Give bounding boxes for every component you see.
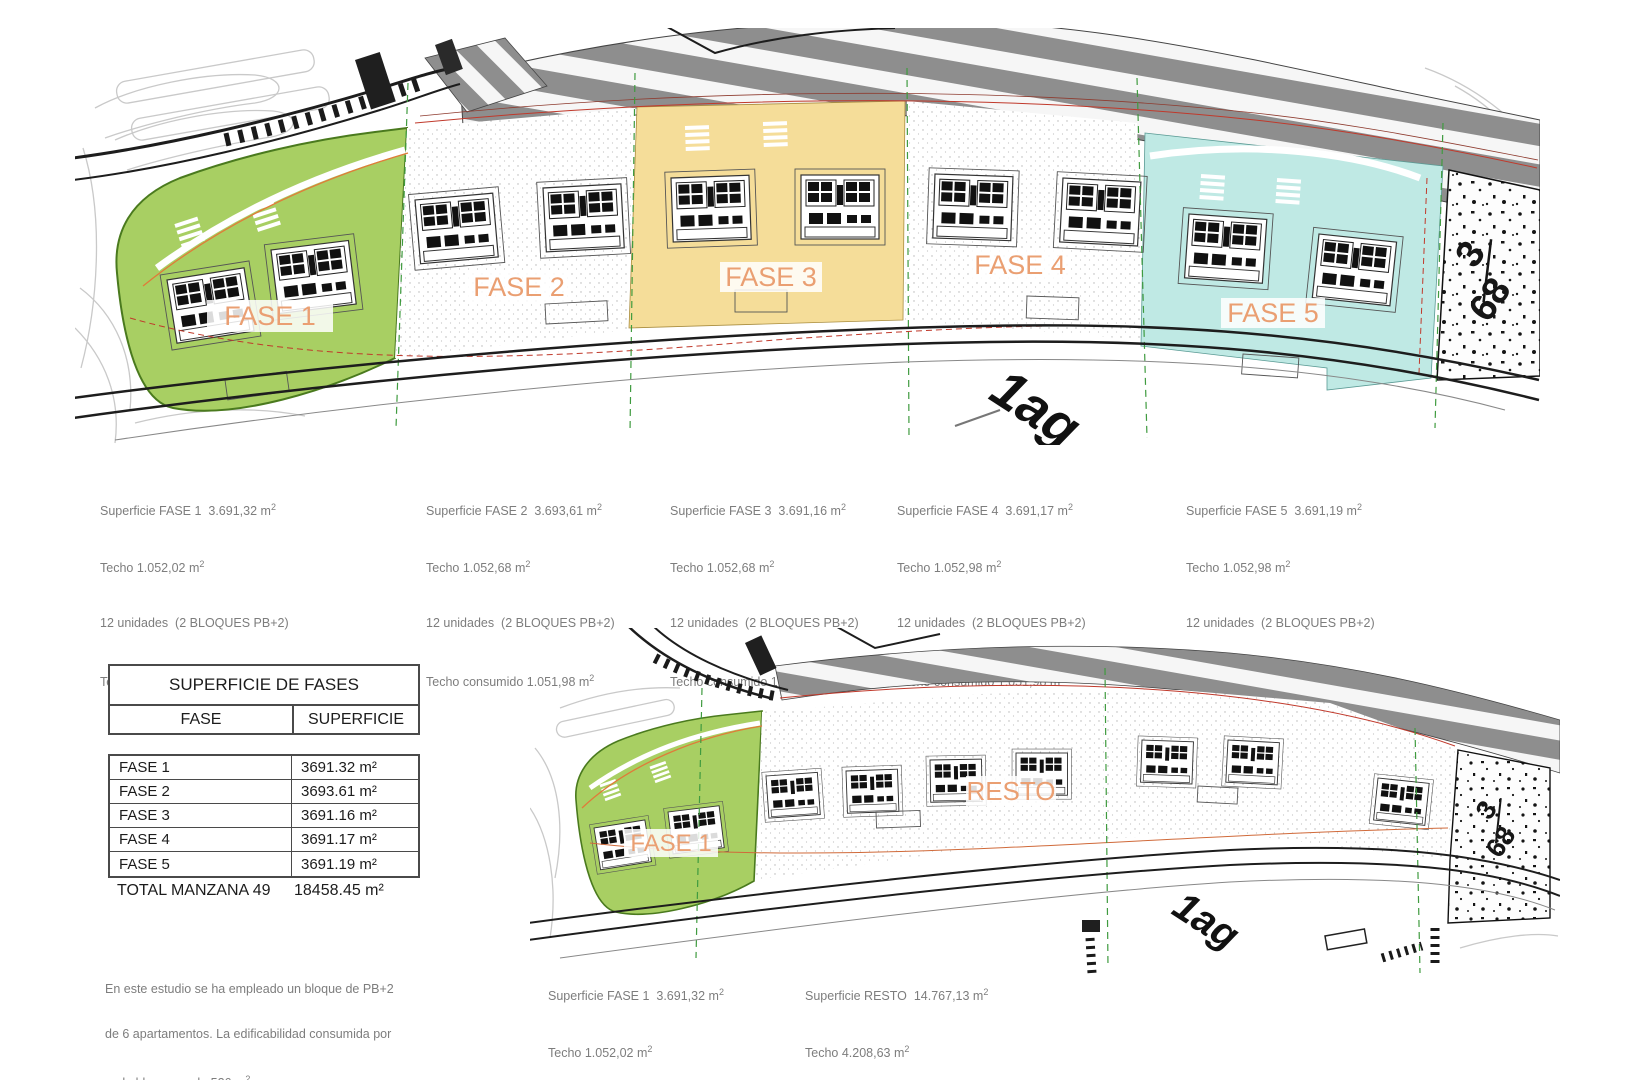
fase2-superficie: Superficie FASE 2 3.693,61 m2 [426,502,615,531]
fase5-label: FASE 5 [1227,298,1319,328]
notes-line: En este estudio se ha empleado un bloque… [105,982,394,997]
study-notes: En este estudio se ha empleado un bloque… [105,952,394,1080]
bottom-site-plan-svg: 3 68 [530,628,1560,990]
table-row: FASE 2 3693.61 m² [110,780,418,804]
plan-sheet: 3 68 [0,0,1626,1080]
notes-line: de 6 apartamentos. La edificabilidad con… [105,1027,394,1042]
table-title: SUPERFICIE DE FASES [110,666,418,706]
road-name-text: 1ag [980,358,1091,445]
notes-line: cada bloque es de 526 m2 [105,1072,394,1080]
bottom-fase1-details: Superficie FASE 1 3.691,32 m2 Techo 1.05… [548,959,724,1080]
fase3-label: FASE 3 [725,262,817,292]
table-total-row: TOTAL MANZANA 49 18458.45 m² [108,882,420,900]
fase3-superficie: Superficie FASE 3 3.691,16 m2 [670,502,859,531]
superficie-table-header: SUPERFICIE DE FASES FASE SUPERFICIE [108,664,420,735]
col-header-fase: FASE [110,706,294,733]
superficie-table: SUPERFICIE DE FASES FASE SUPERFICIE FASE… [108,664,420,900]
table-row: FASE 1 3691.32 m² [110,756,418,780]
fase4-techo: Techo 1.052,98 m2 [897,559,1086,588]
fase1-label: FASE 1 [224,301,316,331]
top-site-plan-svg: 3 68 [75,28,1540,445]
fase1-techo: Techo 1.052,02 m2 [548,1044,724,1073]
resto-label: RESTO [966,776,1055,806]
bottom-site-plan: 3 68 [530,628,1560,990]
table-row: FASE 5 3691.19 m² [110,852,418,876]
fase4-superficie: Superficie FASE 4 3.691,17 m2 [897,502,1086,531]
fase1-techo: Techo 1.052,02 m2 [100,559,289,588]
fase1-unidades: 12 unidades (2 BLOQUES PB+2) [100,616,289,645]
fase4-label: FASE 4 [974,250,1066,280]
fase1-label: FASE 1 [630,830,711,857]
fase1-superficie: Superficie FASE 1 3.691,32 m2 [548,987,724,1016]
superficie-table-body: FASE 1 3691.32 m² FASE 2 3693.61 m² FASE… [108,754,420,878]
fase1-superficie: Superficie FASE 1 3.691,32 m2 [100,502,289,531]
col-header-superficie: SUPERFICIE [294,706,418,733]
fase5-superficie: Superficie FASE 5 3.691,19 m2 [1186,502,1375,531]
fase5-techo: Techo 1.052,98 m2 [1186,559,1375,588]
table-row: FASE 3 3691.16 m² [110,804,418,828]
total-value: 18458.45 m² [294,882,384,900]
fase3-techo: Techo 1.052,68 m2 [670,559,859,588]
top-site-plan: 3 68 [75,28,1540,445]
table-row: FASE 4 3691.17 m² [110,828,418,852]
road-name-text: 1ag [1165,884,1247,958]
total-label: TOTAL MANZANA 49 [108,882,294,900]
fase2-label: FASE 2 [473,272,565,302]
bottom-resto-details: Superficie RESTO 14.767,13 m2 Techo 4.20… [805,959,988,1080]
resto-superficie: Superficie RESTO 14.767,13 m2 [805,987,988,1016]
resto-techo: Techo 4.208,63 m2 [805,1044,988,1073]
fase2-techo: Techo 1.052,68 m2 [426,559,615,588]
